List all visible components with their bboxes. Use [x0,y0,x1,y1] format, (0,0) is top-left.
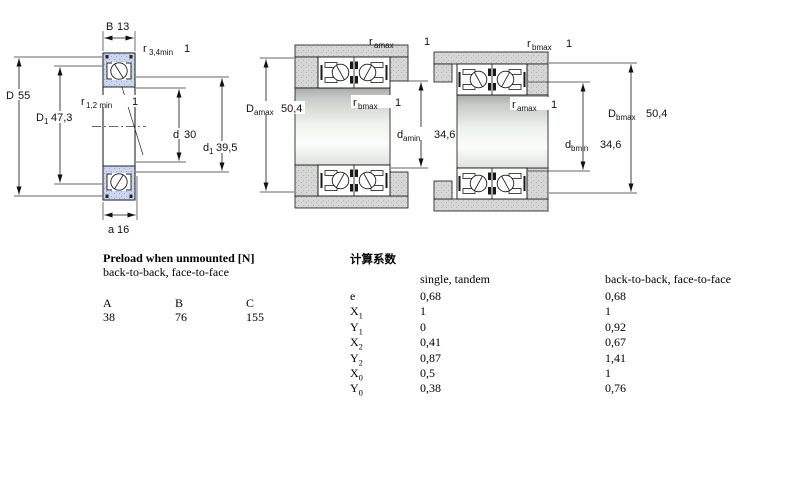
svg-text:r: r [512,99,516,111]
dim-D1: D 1 47,3 [34,66,102,184]
dim-rb-mid-a: r bmax 1 [351,95,401,111]
preload-value-a: 38 [103,310,115,325]
housing-bottom [295,196,408,208]
svg-text:bmax: bmax [358,102,378,111]
arrangement-a-view: r amax 1 r bmax 1 D amax 50,4 d [244,36,458,208]
svg-text:50,4: 50,4 [281,103,302,115]
svg-text:1: 1 [424,36,430,48]
factors-table-title: 计算系数 [350,251,396,267]
technical-drawing: B 13 r 3,4min 1 D 55 D 1 47,3 [0,0,800,245]
shoulder-left-top [295,57,318,88]
svg-text:D: D [246,103,254,115]
svg-text:amin: amin [403,134,420,143]
svg-text:3,4min: 3,4min [149,48,173,57]
svg-text:amax: amax [254,108,274,117]
dim-rb-top-b: r bmax 1 [527,38,572,52]
svg-text:47,3: 47,3 [51,112,72,124]
catalog-page: B 13 r 3,4min 1 D 55 D 1 47,3 [0,0,800,500]
shoulder-left-bottom [295,165,318,196]
preload-table: Preload when unmounted [N] back-to-back,… [103,251,343,331]
svg-text:r: r [527,38,531,50]
svg-text:13: 13 [117,21,129,33]
svg-text:a: a [108,224,115,236]
table-row: e 0,68 0,68 [350,289,790,304]
table-row: Y2 0,87 1,41 [350,351,790,366]
svg-text:r: r [369,36,373,48]
arrangement-b-view: r bmax 1 r amax 1 D bmax 50,4 d bmin 34, [434,38,667,211]
table-row: Y1 0 0,92 [350,320,790,335]
housing-bottom [434,199,548,211]
preload-col-b: B [175,296,183,311]
preload-table-subtitle: back-to-back, face-to-face [103,265,229,280]
dim-D: D 55 [4,57,102,196]
table-row: Y0 0,38 0,76 [350,381,790,396]
svg-text:amax: amax [517,104,537,113]
single-bearing-view: B 13 r 3,4min 1 D 55 D 1 47,3 [4,21,237,236]
svg-text:bmax: bmax [616,113,636,122]
svg-text:r: r [353,97,357,109]
svg-text:1,2 min: 1,2 min [86,101,112,110]
svg-text:bmax: bmax [532,43,552,52]
svg-text:16: 16 [117,224,129,236]
preload-value-b: 76 [175,310,187,325]
svg-text:d: d [173,129,179,141]
svg-text:r: r [81,96,85,108]
bearing-section-bottom [103,166,135,200]
svg-text:34,6: 34,6 [600,139,621,151]
table-row: X0 0,5 1 [350,366,790,381]
svg-text:50,4: 50,4 [646,108,667,120]
svg-text:r: r [143,43,147,55]
svg-text:39,5: 39,5 [216,142,237,154]
factors-col-back-to-back: back-to-back, face-to-face [605,272,731,287]
svg-text:55: 55 [18,90,30,102]
shoulder-right-bottom [527,168,548,199]
preload-table-title: Preload when unmounted [N] [103,251,254,266]
shoulder-right-bottom [390,172,408,196]
factors-col-single-tandem: single, tandem [420,272,490,287]
shoulder-right-top [527,64,548,95]
dim-B: B 13 [103,21,135,51]
svg-text:1: 1 [44,117,49,126]
svg-text:B: B [106,21,113,33]
table-row: X1 1 1 [350,304,790,319]
preload-col-a: A [103,296,112,311]
calculation-factors-table: 计算系数 single, tandem back-to-back, face-t… [350,251,790,411]
svg-text:amax: amax [374,41,394,50]
svg-text:34,6: 34,6 [434,129,455,141]
svg-text:D: D [36,112,44,124]
table-row: X2 0,41 0,67 [350,335,790,350]
housing-top [434,52,548,64]
svg-text:1: 1 [395,97,401,109]
dim-ra-mid-b: r amax 1 [510,97,560,113]
factors-table-rows: e 0,68 0,68 X1 1 1 Y1 0 0,92 X2 0,41 0,6… [350,289,790,397]
dim-damin: d amin 34,6 [391,81,458,168]
svg-text:30: 30 [184,129,196,141]
svg-text:1: 1 [551,99,557,111]
svg-text:1: 1 [566,38,572,50]
svg-text:bmin: bmin [571,144,588,153]
bearing-section-top [103,53,135,87]
preload-col-c: C [246,296,254,311]
preload-value-c: 155 [246,310,264,325]
shoulder-right-top [390,57,408,81]
shoulder-left-top [434,64,452,82]
shoulder-left-bottom [434,181,452,199]
svg-text:D: D [6,90,14,102]
svg-text:1: 1 [209,147,214,156]
svg-text:1: 1 [184,43,190,55]
svg-text:1: 1 [132,96,138,108]
dim-d: d 30 [136,88,196,162]
dim-d1: d 1 39,5 [136,77,237,172]
svg-text:D: D [608,108,616,120]
dim-r34: r 3,4min 1 [143,43,190,57]
dim-Dbmax: D bmax 50,4 [549,63,667,193]
